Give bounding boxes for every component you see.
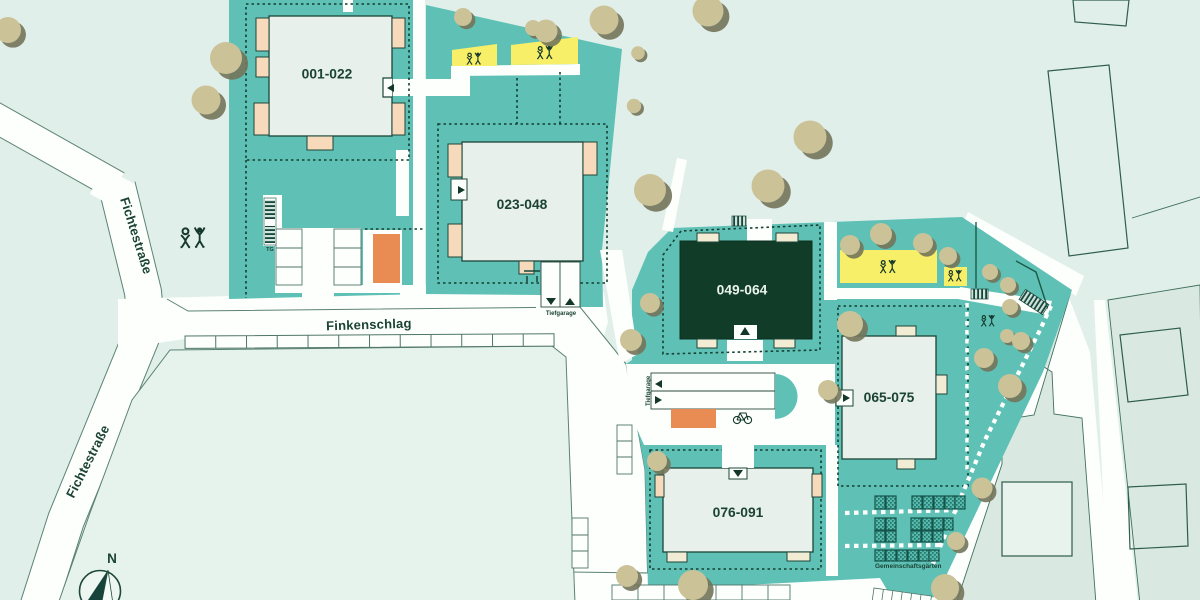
- svg-text:Tiefgarage: Tiefgarage: [646, 375, 652, 406]
- svg-text:TG: TG: [266, 247, 274, 253]
- svg-text:076-091: 076-091: [713, 505, 764, 520]
- svg-text:Gemeinschaftsgärten: Gemeinschaftsgärten: [875, 563, 941, 570]
- svg-text:N: N: [107, 551, 117, 566]
- svg-text:065-075: 065-075: [864, 390, 915, 405]
- svg-text:001-022: 001-022: [302, 67, 353, 82]
- svg-text:023-048: 023-048: [497, 197, 548, 212]
- svg-text:049-064: 049-064: [717, 283, 768, 298]
- svg-text:Finkenschlag: Finkenschlag: [326, 316, 412, 334]
- svg-text:Tiefgarage: Tiefgarage: [546, 311, 577, 317]
